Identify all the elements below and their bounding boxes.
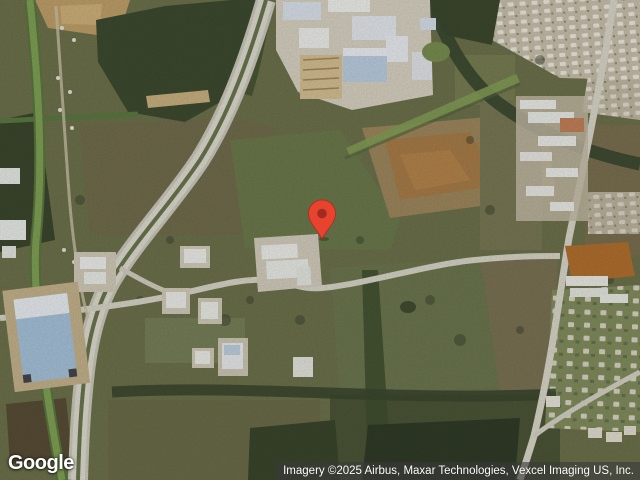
attribution-text: Imagery ©2025 Airbus, Maxar Technologies… (283, 462, 634, 480)
attribution-bar: Imagery ©2025 Airbus, Maxar Technologies… (276, 462, 640, 480)
map-viewport[interactable]: Google Imagery ©2025 Airbus, Maxar Techn… (0, 0, 640, 480)
texture-overlay (0, 0, 640, 480)
google-logo[interactable]: Google (8, 452, 74, 475)
satellite-imagery (0, 0, 640, 480)
